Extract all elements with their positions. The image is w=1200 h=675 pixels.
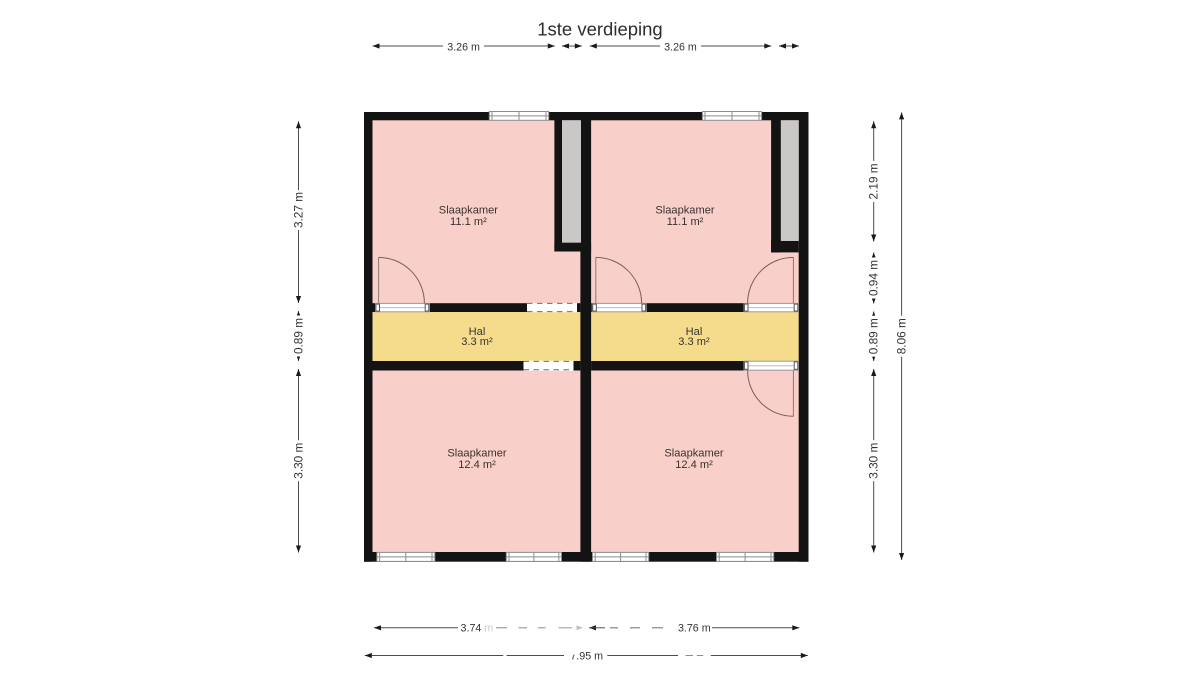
svg-text:3.26 m: 3.26 m (664, 41, 697, 53)
svg-text:3.3 m²: 3.3 m² (678, 336, 710, 348)
svg-text:Slaapkamer: Slaapkamer (447, 448, 507, 460)
svg-text:11.1 m²: 11.1 m² (450, 216, 487, 228)
svg-text:0.94 m: 0.94 m (867, 260, 881, 296)
svg-text:3.76 m: 3.76 m (678, 623, 711, 635)
svg-text:3.30 m: 3.30 m (292, 443, 306, 479)
svg-text:0.89 m: 0.89 m (867, 318, 881, 354)
svg-text:3.26 m: 3.26 m (447, 41, 480, 53)
svg-text:8.06 m: 8.06 m (895, 318, 909, 354)
svg-text:3.74 m: 3.74 m (461, 623, 494, 635)
svg-text:3.3 m²: 3.3 m² (461, 336, 493, 348)
svg-text:Slaapkamer: Slaapkamer (439, 204, 499, 216)
svg-text:11.1 m²: 11.1 m² (667, 216, 704, 228)
svg-text:12.4 m²: 12.4 m² (675, 459, 713, 471)
svg-text:2.19 m: 2.19 m (867, 163, 881, 199)
svg-text:1ste verdieping: 1ste verdieping (537, 19, 662, 40)
svg-text:3.27 m: 3.27 m (292, 192, 306, 228)
svg-text:Slaapkamer: Slaapkamer (664, 448, 724, 460)
svg-text:0.89 m: 0.89 m (292, 318, 306, 354)
svg-text:Slaapkamer: Slaapkamer (655, 204, 715, 216)
svg-text:3.30 m: 3.30 m (867, 443, 881, 479)
svg-text:12.4 m²: 12.4 m² (458, 459, 496, 471)
